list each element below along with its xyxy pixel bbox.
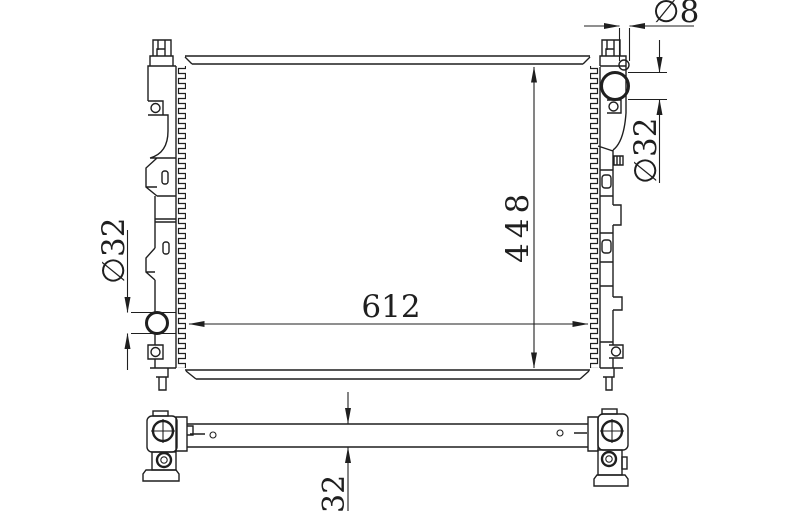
bottom-right-end-assembly [594, 409, 628, 486]
dimension-core-height: 448 [500, 67, 536, 368]
right-tank-lower-slot [602, 240, 611, 253]
right-upper-mount-hole [609, 102, 618, 111]
left-pipe-flare [143, 470, 179, 481]
bottom-left-end-assembly [143, 411, 179, 481]
core-top-edge [185, 56, 590, 64]
outlet-port-circle [147, 313, 168, 334]
left-lower-mount-hole [151, 348, 160, 357]
right-tank-upper-slot [602, 175, 611, 188]
left-tank-outline [146, 40, 176, 390]
dimension-core-thickness: 32 [317, 392, 352, 513]
mount-pin-hole [619, 60, 629, 70]
bar-left-hole [210, 432, 216, 438]
drawing-canvas: 612 448 ∅32 ∅32 ∅8 [0, 0, 791, 531]
bar-right-hole [557, 430, 563, 436]
right-pipe-opening [602, 452, 616, 466]
left-pipe-opening [157, 453, 171, 467]
dimension-outlet-diameter: ∅32 [96, 218, 176, 370]
thickness-label: 32 [317, 475, 352, 513]
core-right-crimp-teeth [590, 66, 599, 368]
bottom-view [143, 409, 628, 486]
left-housing-step [153, 411, 168, 416]
dimension-inlet-diameter: ∅32 [628, 40, 667, 184]
right-housing-step [602, 409, 617, 414]
left-tank-upper-slot [162, 171, 168, 184]
pin-diameter-label: ∅8 [653, 0, 700, 30]
core-left-crimp-teeth [177, 66, 186, 368]
bottom-bar [176, 417, 598, 451]
inlet-port-circle [602, 73, 629, 100]
right-pipe-inner [606, 456, 612, 462]
front-left-tank [146, 40, 176, 390]
right-screw-cap-cross [600, 419, 624, 443]
inlet-extension-lines [628, 73, 667, 100]
left-tank-lower-slot [163, 242, 169, 254]
outlet-diameter-label: ∅32 [96, 218, 132, 284]
core-bottom-edge [185, 370, 590, 379]
inlet-diameter-label: ∅32 [628, 118, 664, 184]
left-screw-cap-cross [151, 419, 175, 443]
dimension-core-width: 612 [189, 289, 588, 325]
core-height-label: 448 [500, 189, 536, 263]
right-pipe-tab [622, 457, 627, 469]
radiator-technical-drawing: 612 448 ∅32 ∅32 ∅8 [0, 0, 791, 531]
outlet-extension-lines [131, 313, 176, 334]
right-pipe-flare [594, 475, 628, 486]
front-right-tank [598, 40, 629, 390]
left-pipe-inner [161, 457, 167, 463]
left-upper-mount-hole [151, 104, 160, 113]
core-width-label: 612 [361, 289, 420, 325]
front-view [146, 40, 629, 390]
right-lower-mount-hole [612, 347, 621, 356]
